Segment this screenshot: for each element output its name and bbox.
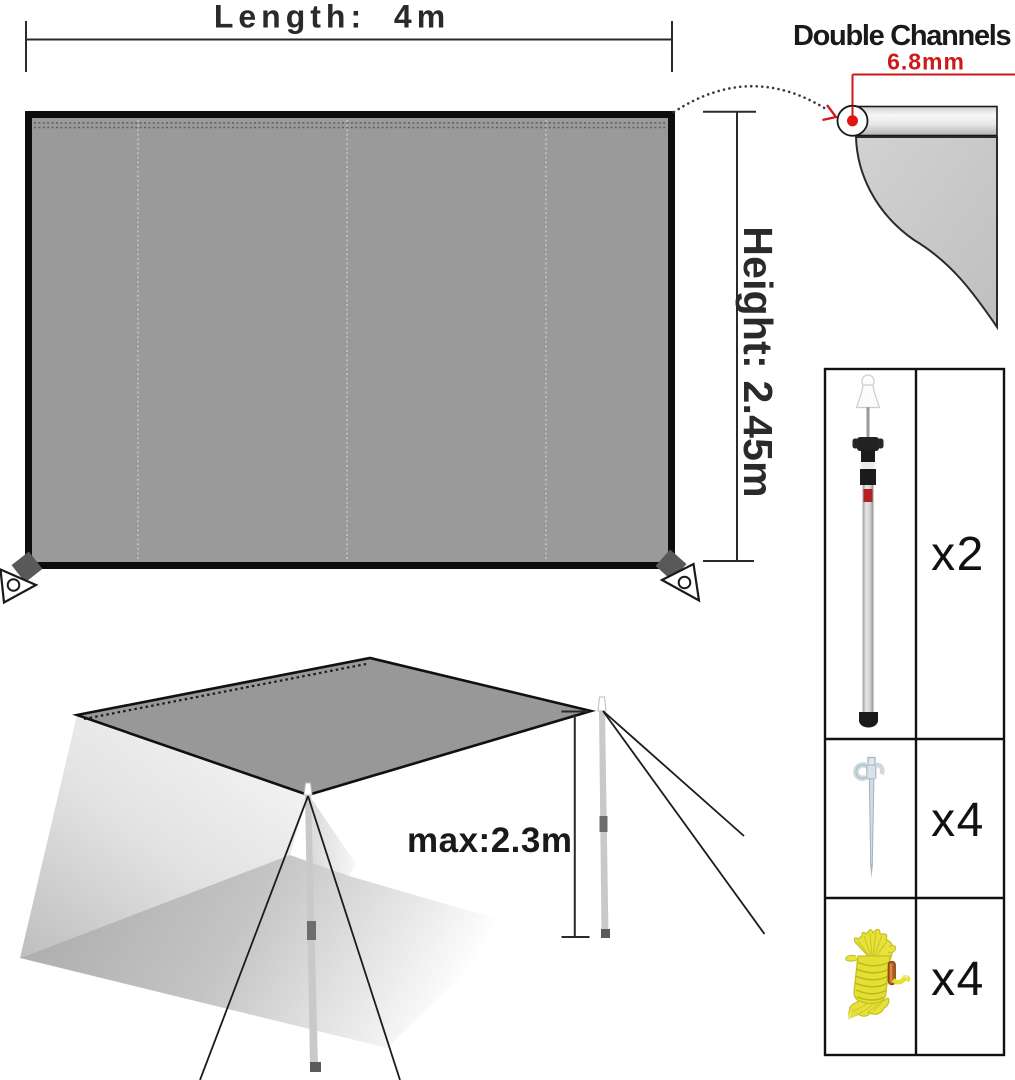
svg-text:x4: x4 [931, 953, 985, 1006]
svg-text:Height: 2.45m: Height: 2.45m [735, 226, 781, 497]
svg-text:Double Channels: Double Channels [793, 20, 1011, 52]
svg-text:x4: x4 [931, 794, 985, 847]
svg-text:x2: x2 [931, 528, 985, 581]
svg-text:max:2.3m: max:2.3m [407, 821, 572, 860]
svg-text:6.8mm: 6.8mm [887, 49, 965, 75]
svg-text:Length: 4m: Length: 4m [214, 0, 450, 35]
